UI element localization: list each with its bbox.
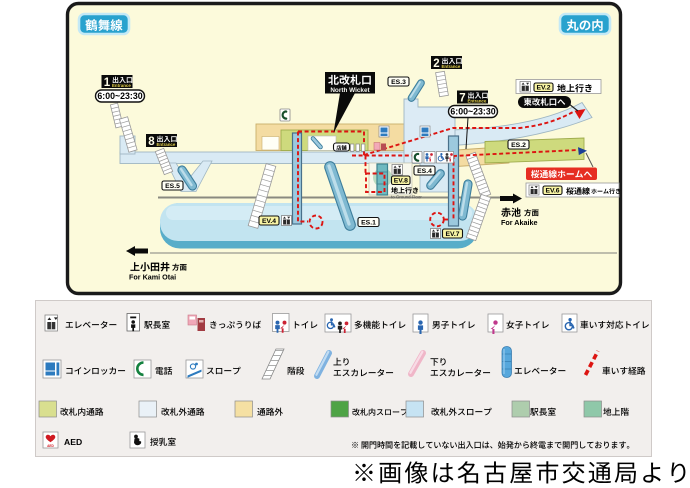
svg-text:North Wicket: North Wicket xyxy=(330,87,370,94)
svg-text:8: 8 xyxy=(148,136,155,148)
svg-text:1: 1 xyxy=(104,77,111,89)
svg-text:ES.3: ES.3 xyxy=(391,79,406,86)
svg-text:7: 7 xyxy=(459,92,465,104)
svg-text:6:00~23:30: 6:00~23:30 xyxy=(97,91,142,101)
svg-text:EV.8: EV.8 xyxy=(394,178,408,185)
svg-text:EV.7: EV.7 xyxy=(445,231,459,238)
svg-text:ES.1: ES.1 xyxy=(361,220,376,227)
svg-text:to Ground Floor: to Ground Floor xyxy=(391,195,422,200)
svg-text:Entrance: Entrance xyxy=(468,98,487,103)
svg-text:2: 2 xyxy=(433,58,439,70)
svg-text:Entrance: Entrance xyxy=(112,83,131,88)
svg-text:EV.4: EV.4 xyxy=(262,218,276,225)
svg-text:EV.6: EV.6 xyxy=(545,188,559,195)
svg-text:ES.2: ES.2 xyxy=(511,142,526,149)
svg-text:For Akaike: For Akaike xyxy=(501,218,538,227)
svg-text:AED: AED xyxy=(47,444,54,448)
svg-text:ES.5: ES.5 xyxy=(165,183,180,190)
svg-text:For Kami Otai: For Kami Otai xyxy=(129,273,176,282)
svg-text:AED: AED xyxy=(64,437,82,447)
svg-text:Entrance: Entrance xyxy=(157,142,176,147)
svg-text:EV.2: EV.2 xyxy=(536,85,550,92)
svg-text:6:00~23:30: 6:00~23:30 xyxy=(450,107,495,117)
svg-text:ES.4: ES.4 xyxy=(417,168,432,175)
svg-text:Entrance: Entrance xyxy=(442,64,461,69)
